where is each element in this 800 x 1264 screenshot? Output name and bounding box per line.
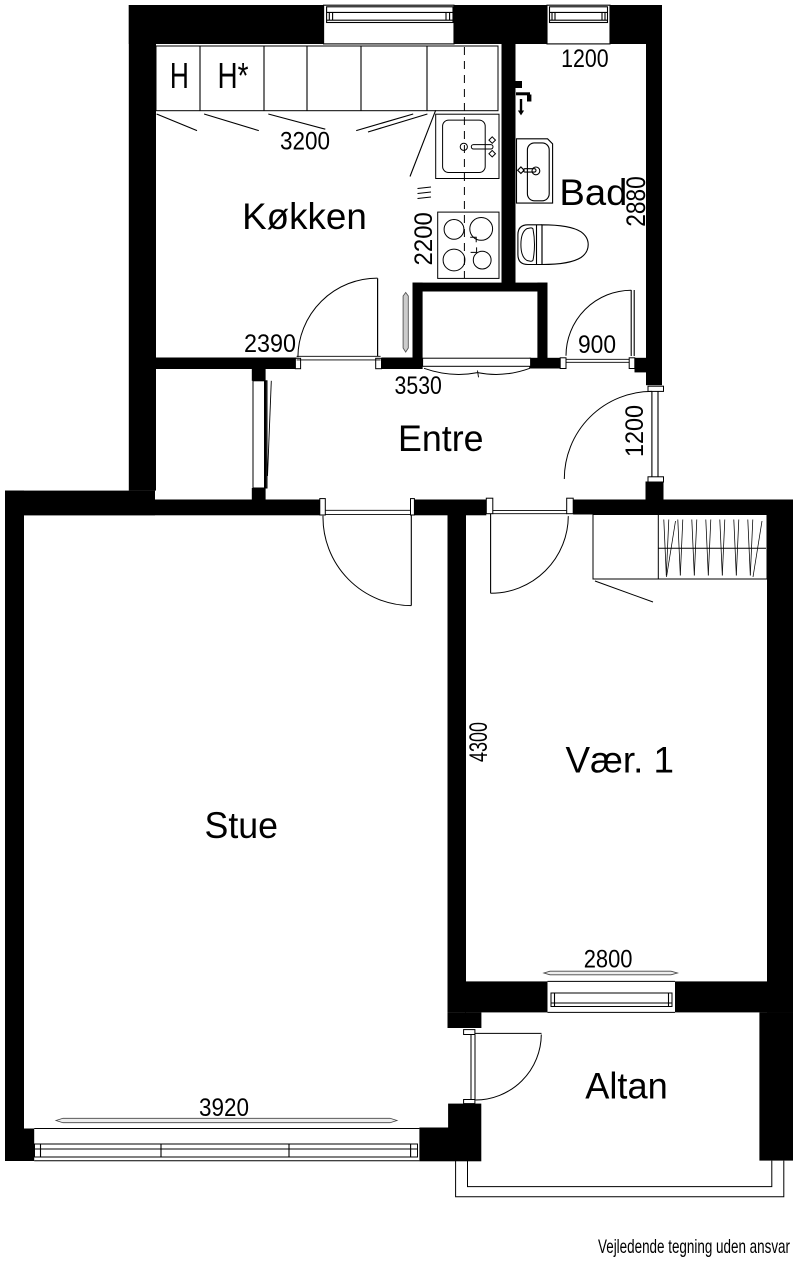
svg-text:1200: 1200 [561, 45, 609, 73]
svg-text:2200: 2200 [410, 212, 438, 265]
svg-text:Altan: Altan [585, 1065, 668, 1107]
svg-text:2880: 2880 [621, 176, 651, 227]
svg-text:Stue: Stue [205, 804, 279, 846]
svg-text:Bad: Bad [559, 171, 627, 213]
svg-text:Vejledende tegning uden ansvar: Vejledende tegning uden ansvar [598, 1236, 790, 1258]
svg-text:Vær. 1: Vær. 1 [566, 739, 675, 781]
svg-text:Køkken: Køkken [242, 195, 367, 237]
svg-text:Entre: Entre [398, 417, 484, 459]
svg-text:3530: 3530 [395, 372, 442, 400]
svg-text:2800: 2800 [584, 946, 633, 974]
svg-text:900: 900 [578, 331, 616, 359]
svg-text:1200: 1200 [621, 405, 649, 457]
svg-text:3200: 3200 [280, 128, 330, 156]
svg-text:4300: 4300 [465, 722, 493, 762]
svg-text:2390: 2390 [244, 330, 296, 358]
svg-text:3920: 3920 [199, 1094, 249, 1122]
svg-text:H*: H* [218, 55, 249, 96]
svg-text:H: H [170, 55, 189, 96]
